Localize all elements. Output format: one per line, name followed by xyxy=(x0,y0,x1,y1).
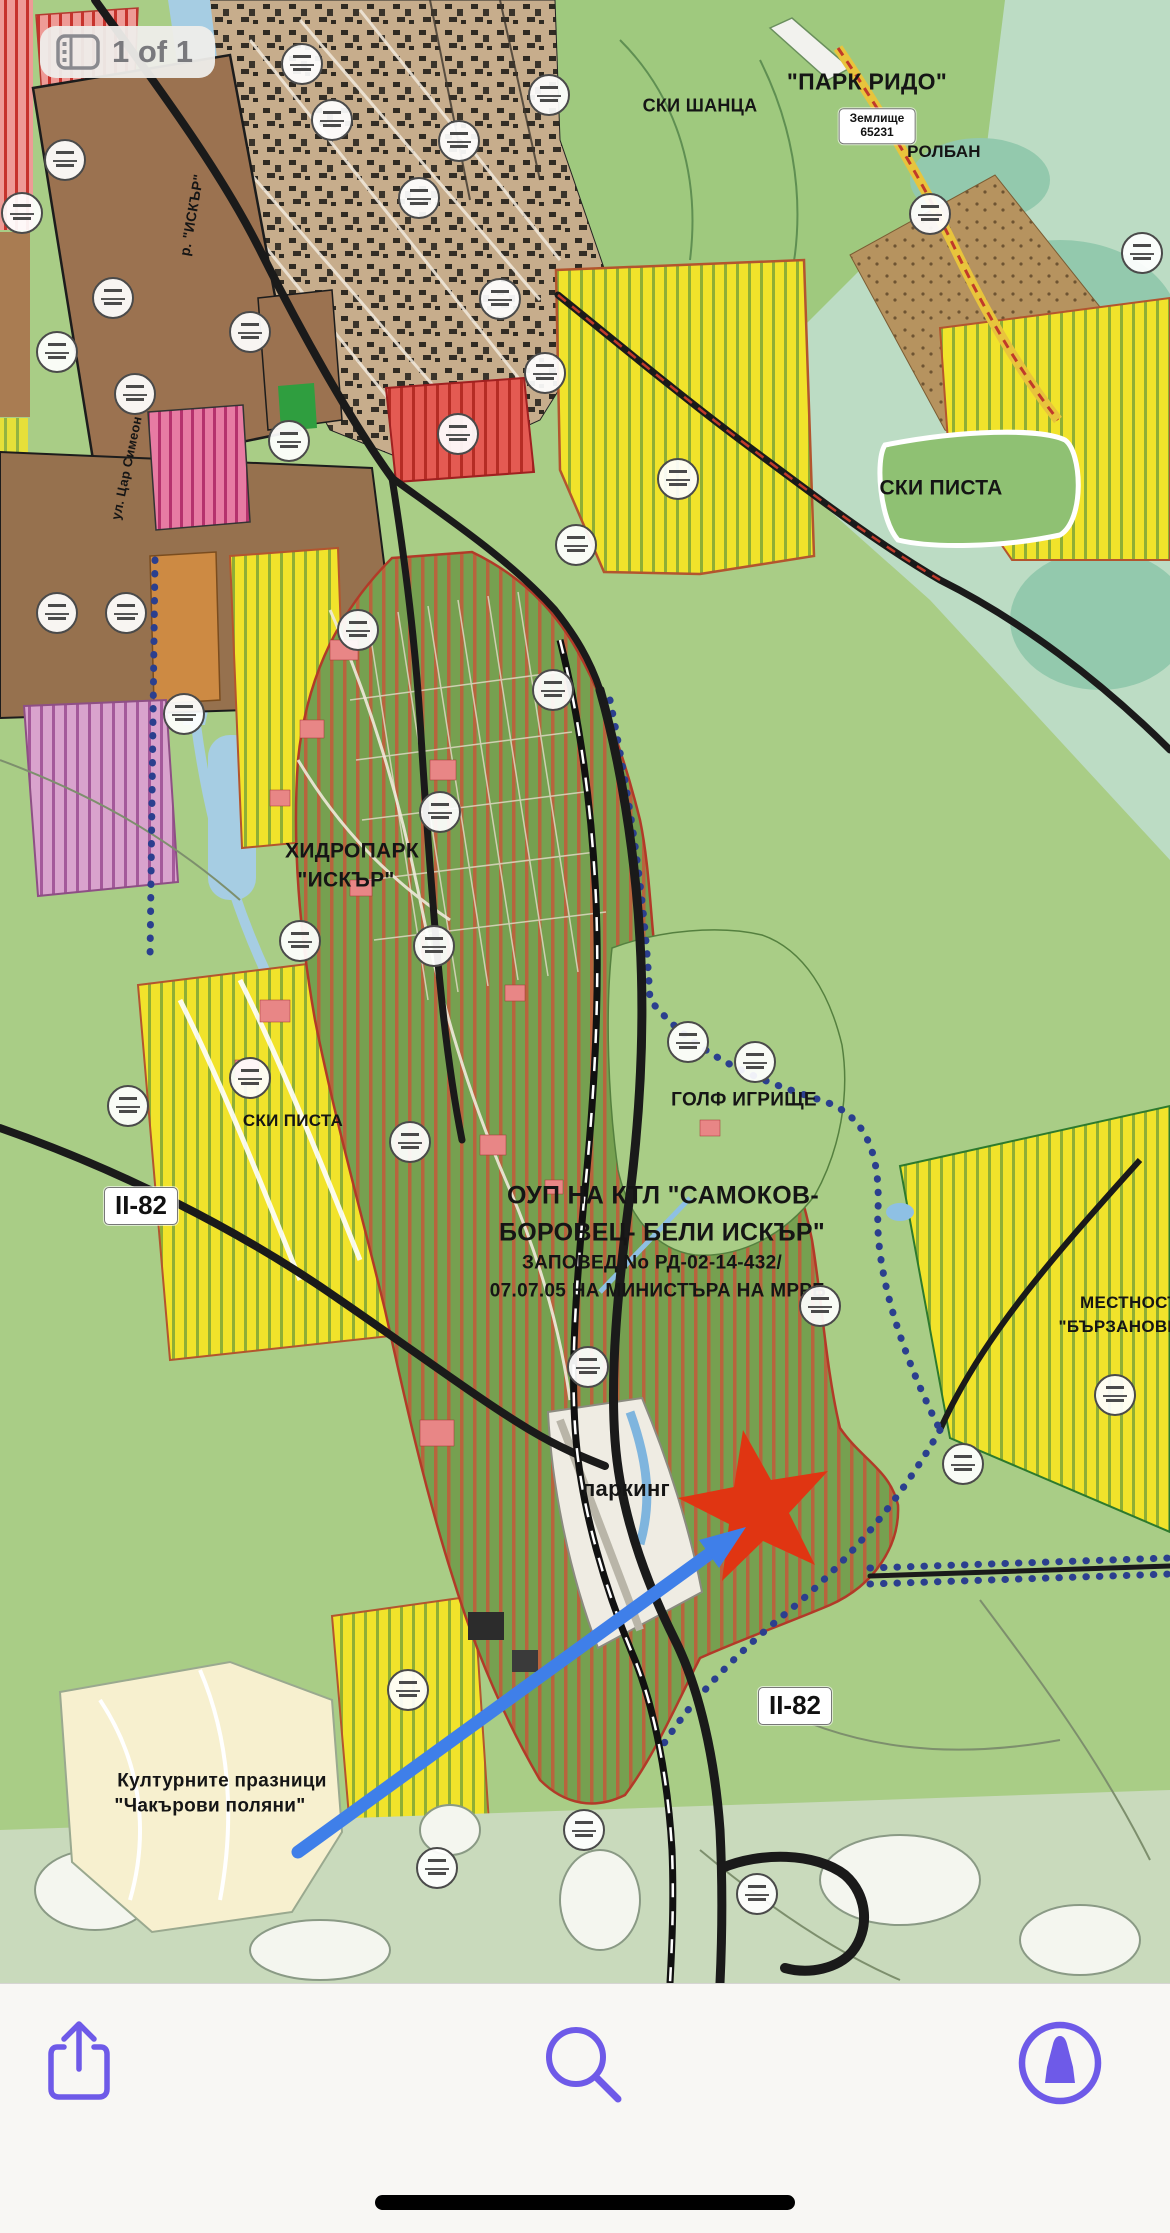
search-icon xyxy=(538,2021,630,2111)
share-button[interactable] xyxy=(44,2017,114,2106)
markup-button[interactable] xyxy=(1014,2017,1106,2112)
screen: СКИ ШАНЦА"ПАРК РИДО"РОЛБАНСКИ ПИСТАХИДРО… xyxy=(0,0,1170,2233)
zoning-map-canvas xyxy=(0,0,1170,1983)
home-indicator[interactable] xyxy=(375,2195,795,2210)
markup-icon xyxy=(1014,2017,1106,2109)
share-icon xyxy=(44,2017,114,2103)
map-viewer[interactable]: СКИ ШАНЦА"ПАРК РИДО"РОЛБАНСКИ ПИСТАХИДРО… xyxy=(0,0,1170,1983)
page-indicator-label: 1 of 1 xyxy=(112,34,193,70)
bottom-toolbar: ДИВА ПРОПЪРТИС ЕООД xyxy=(0,1983,1170,2233)
search-button[interactable] xyxy=(538,2021,630,2114)
thumbnails-sidebar-icon xyxy=(56,34,100,70)
page-indicator[interactable]: 1 of 1 xyxy=(40,26,215,78)
